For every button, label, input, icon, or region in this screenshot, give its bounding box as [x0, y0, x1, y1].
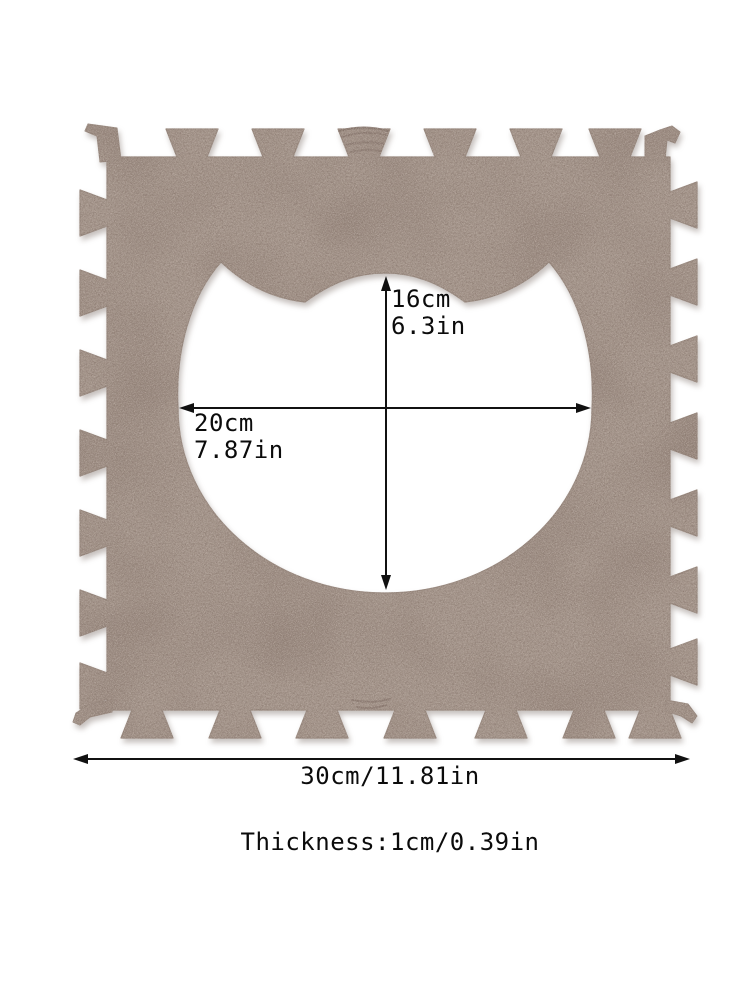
arrow-right-icon [576, 403, 591, 413]
cutout-height-cm: 16cm [391, 286, 466, 313]
cutout-height-arrow [381, 276, 391, 590]
arrow-up-icon [381, 276, 391, 291]
mat-outline [80, 129, 697, 738]
arrow-right-icon [675, 754, 690, 764]
cutout-width-in: 7.87in [194, 437, 284, 464]
arrow-down-icon [381, 575, 391, 590]
cutout-width-label: 20cm 7.87in [194, 410, 284, 464]
corner-hook-top-right [645, 126, 680, 160]
corner-hook-top-left [85, 124, 121, 162]
corner-hook-bottom-left [73, 700, 112, 725]
cutout-height-in: 6.3in [391, 313, 466, 340]
mat-width-label: 30cm/11.81in [300, 763, 479, 790]
cutout-height-label: 16cm 6.3in [391, 286, 466, 340]
product-dimension-diagram: 16cm 6.3in 20cm 7.87in 30cm/11.81in Thic… [0, 0, 750, 1000]
cutout-width-cm: 20cm [194, 410, 284, 437]
arrow-left-icon [73, 754, 88, 764]
thickness-label: Thickness:1cm/0.39in [241, 829, 540, 856]
arrow-left-icon [179, 403, 194, 413]
